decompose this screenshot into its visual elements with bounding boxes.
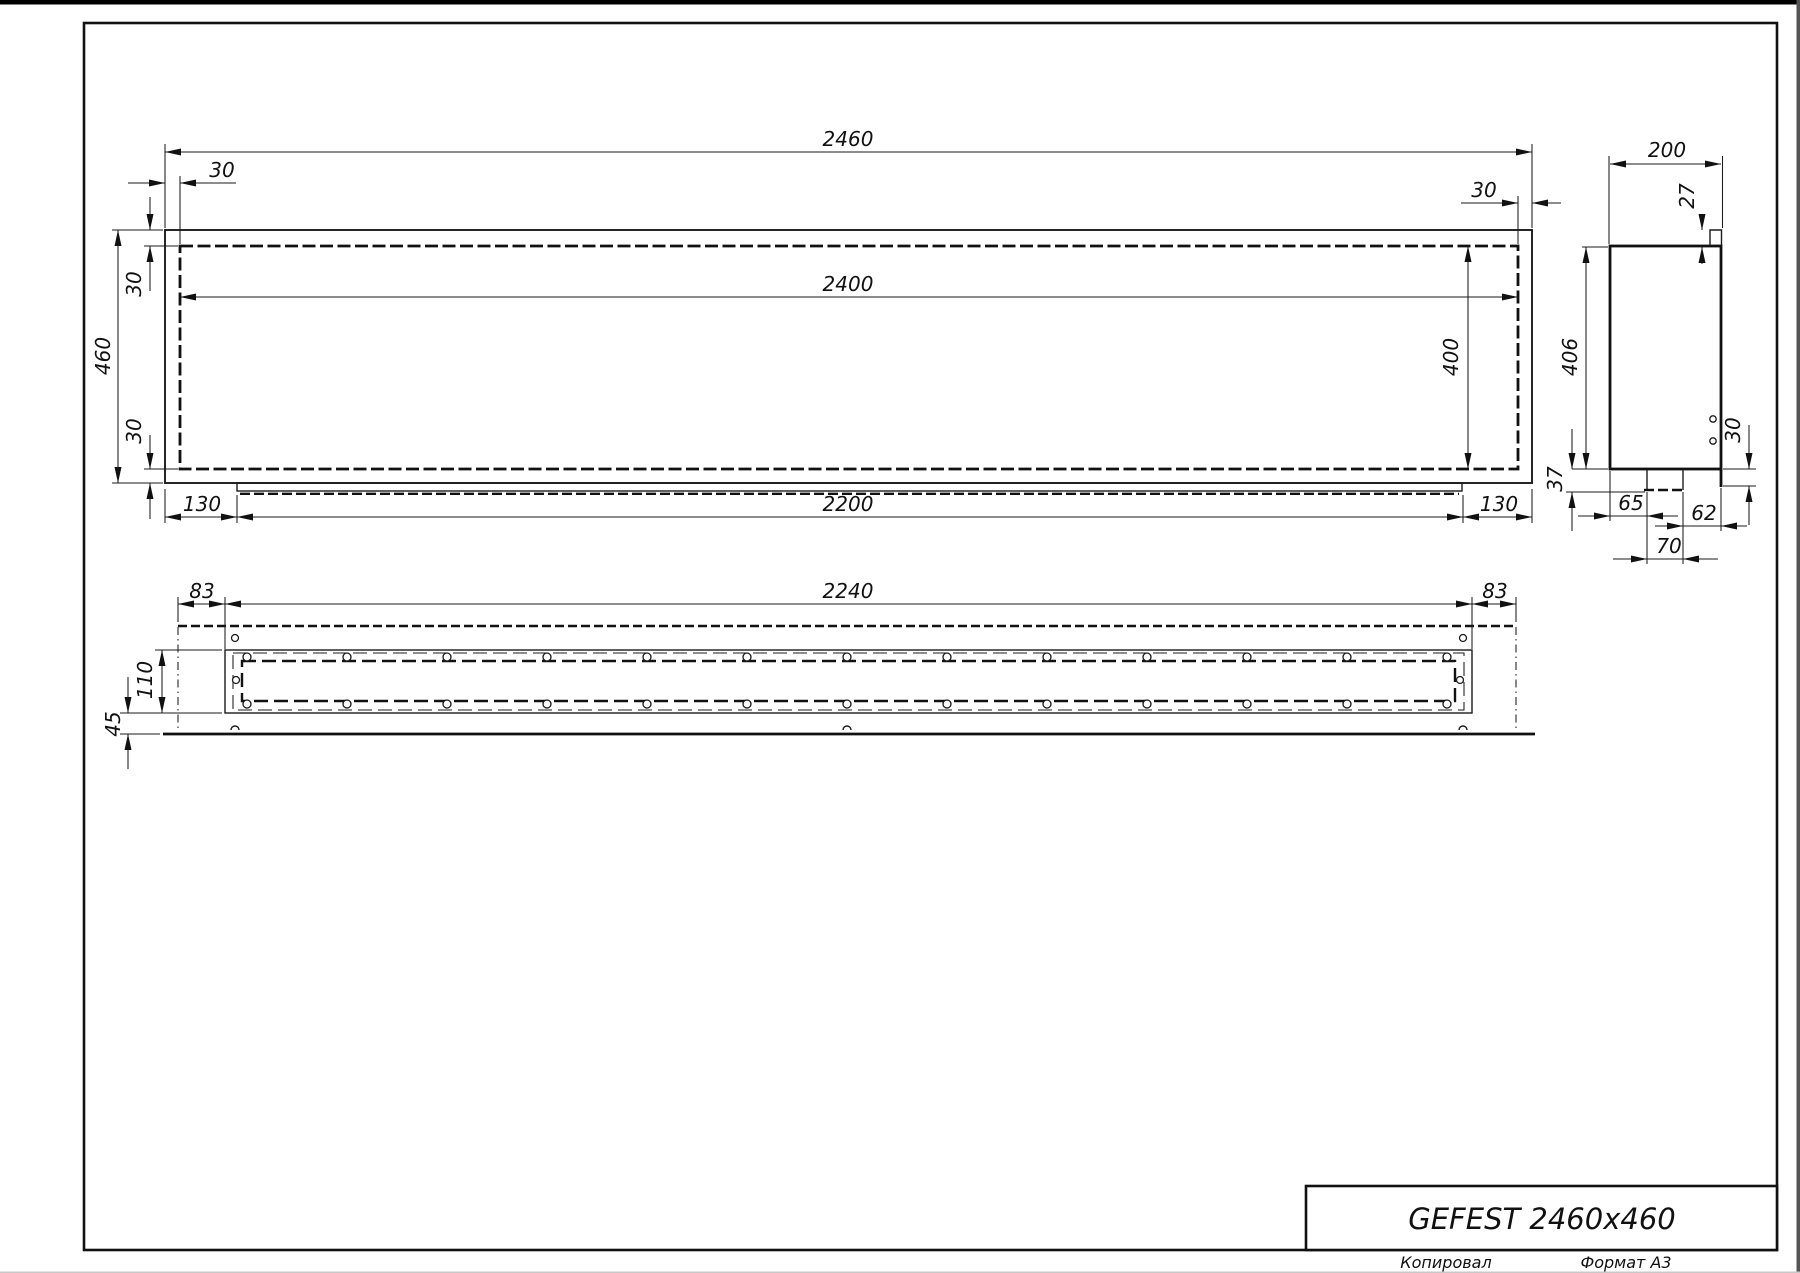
dim-side-overall-height: 406 (1558, 338, 1582, 376)
dim-front-bottom-wall: 30 (122, 418, 146, 443)
dim-side-bracket-offset: 65 (1618, 491, 1643, 515)
drawing-frame (84, 23, 1777, 1250)
dim-front-opening-width: 2400 (823, 272, 874, 296)
dim-side-bracket-drop: 37 (1543, 466, 1567, 492)
dim-front-overall-width: 2460 (823, 127, 874, 151)
title-block-product-name: GEFEST 2460x460 (1408, 1202, 1675, 1236)
dim-side-bracket-width: 70 (1656, 534, 1681, 558)
dim-front-top-wall: 30 (122, 271, 146, 296)
dim-bottom-right-margin: 83 (1482, 579, 1507, 603)
dim-side-bracket-to-rear: 62 (1691, 501, 1716, 525)
dim-bottom-burner-depth: 110 (133, 661, 157, 699)
dim-bottom-left-margin: 83 (189, 579, 214, 603)
dim-side-top-lip: 27 (1675, 183, 1699, 209)
title-block: GEFEST 2460x460 (1306, 1186, 1777, 1250)
dim-front-left-wall: 30 (209, 158, 234, 182)
drawing-canvas: 2460 30 30 2400 460 30 30 400 130 2200 1… (0, 0, 1800, 1273)
dim-side-rear-flange: 30 (1721, 417, 1745, 442)
dim-front-overall-height: 460 (91, 337, 115, 375)
dim-front-tray-left-offset: 130 (183, 492, 221, 516)
dim-front-tray-length: 2200 (823, 492, 874, 516)
cad-drawing-screenshot: 2460 30 30 2400 460 30 30 400 130 2200 1… (0, 0, 1800, 1273)
dim-front-right-wall: 30 (1471, 178, 1496, 202)
dim-bottom-rear-flange: 45 (101, 711, 125, 736)
format-label: Формат А3 (1580, 1253, 1671, 1272)
copied-by-label: Копировал (1400, 1253, 1491, 1272)
frame-footer: Копировал Формат А3 (1400, 1253, 1671, 1272)
dim-front-opening-height: 400 (1439, 338, 1463, 376)
dim-bottom-burner-length: 2240 (823, 579, 874, 603)
dim-front-tray-right-offset: 130 (1480, 492, 1518, 516)
dim-side-overall-depth: 200 (1648, 138, 1686, 162)
